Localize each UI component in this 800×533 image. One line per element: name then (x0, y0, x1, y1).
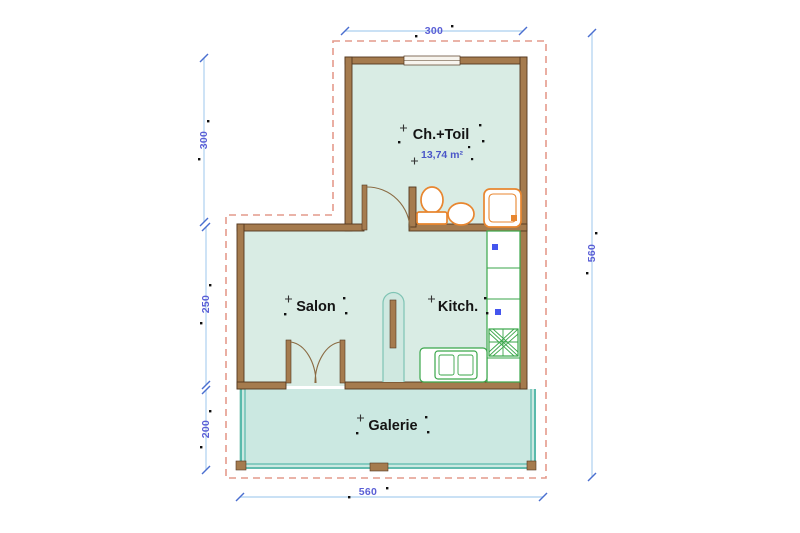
dim-left-upper[interactable]: 300 (198, 54, 210, 226)
room-label-living[interactable]: Salon (296, 299, 335, 315)
hob[interactable] (489, 329, 518, 356)
kitchen-sink[interactable] (435, 351, 477, 379)
selection-dot (486, 312, 488, 314)
dim-top[interactable]: 300 (341, 25, 527, 37)
wall-left-upper[interactable] (345, 57, 352, 231)
selection-dot (207, 120, 209, 122)
room-label-bedroom[interactable]: Ch.+Toil (413, 127, 470, 143)
selection-dot (482, 140, 484, 142)
room-label-kitchen[interactable]: Kitch. (438, 299, 478, 315)
gallery-post-right[interactable] (527, 461, 536, 470)
selection-dot (427, 431, 429, 433)
wall-bottom-left[interactable] (237, 382, 286, 389)
sink-basin (448, 203, 474, 225)
selection-dot (386, 487, 388, 489)
selection-dot (479, 124, 481, 126)
dim-left-middle[interactable]: 250 (200, 223, 212, 389)
dim-bottom[interactable]: 560 (236, 486, 547, 501)
gallery-post-left[interactable] (236, 461, 246, 470)
interior-door[interactable] (383, 293, 404, 383)
wall-kitchen-right[interactable] (520, 231, 527, 389)
bedroom-door-leaf[interactable] (362, 185, 367, 230)
appliance-marker-1 (492, 244, 498, 250)
selection-dot (345, 312, 347, 314)
selection-dot (209, 410, 211, 412)
dim-label-right[interactable]: 560 (586, 244, 598, 262)
kitchen-counter-right[interactable] (487, 231, 520, 382)
dim-right[interactable]: 560 (586, 29, 598, 481)
selection-dot (415, 35, 417, 37)
bathroom-sink[interactable] (448, 203, 474, 225)
wc-tank (417, 212, 447, 224)
counter-right-body (487, 231, 520, 382)
selection-dot (425, 416, 427, 418)
wall-middle-left[interactable] (237, 224, 364, 231)
selection-dot (209, 284, 211, 286)
room-area-bedroom[interactable]: 13,74 m² (421, 149, 464, 161)
shower[interactable] (484, 189, 521, 227)
french-door-left-leaf[interactable] (286, 340, 291, 383)
selection-dot (198, 158, 200, 160)
selection-dot (586, 272, 588, 274)
wc-bowl (421, 187, 443, 213)
room-label-gallery[interactable]: Galerie (368, 418, 417, 434)
floor-plan-drawing: Ch.+Toil 13,74 m² Salon Kitch. Galerie 3… (0, 0, 800, 533)
shower-drain (511, 215, 517, 221)
selection-dot (348, 496, 350, 498)
appliance-marker-2 (495, 309, 501, 315)
interior-door-leaf[interactable] (390, 300, 396, 348)
floor-plan-canvas: Ch.+Toil 13,74 m² Salon Kitch. Galerie 3… (0, 0, 800, 533)
gallery-step[interactable] (370, 463, 388, 471)
wall-living-left[interactable] (237, 224, 244, 389)
dim-label-left-upper[interactable]: 300 (198, 131, 210, 149)
selection-dot (200, 446, 202, 448)
selection-dot (398, 141, 400, 143)
selection-dot (200, 322, 202, 324)
selection-dot (595, 232, 597, 234)
selection-dot (471, 158, 473, 160)
dim-label-left-lower[interactable]: 200 (200, 420, 212, 438)
dim-label-bottom[interactable]: 560 (359, 486, 377, 498)
selection-dot (284, 313, 286, 315)
french-door-right-leaf[interactable] (340, 340, 345, 383)
selection-dot (468, 146, 470, 148)
wall-partition-stub[interactable] (409, 187, 416, 227)
selection-dot (484, 297, 486, 299)
selection-dot (451, 25, 453, 27)
wall-bottom-right[interactable] (345, 382, 527, 389)
selection-dot (356, 432, 358, 434)
selection-dot (343, 297, 345, 299)
dim-label-top[interactable]: 300 (425, 25, 443, 37)
dim-left-lower[interactable]: 200 (200, 386, 212, 474)
dim-label-left-middle[interactable]: 250 (200, 295, 212, 313)
